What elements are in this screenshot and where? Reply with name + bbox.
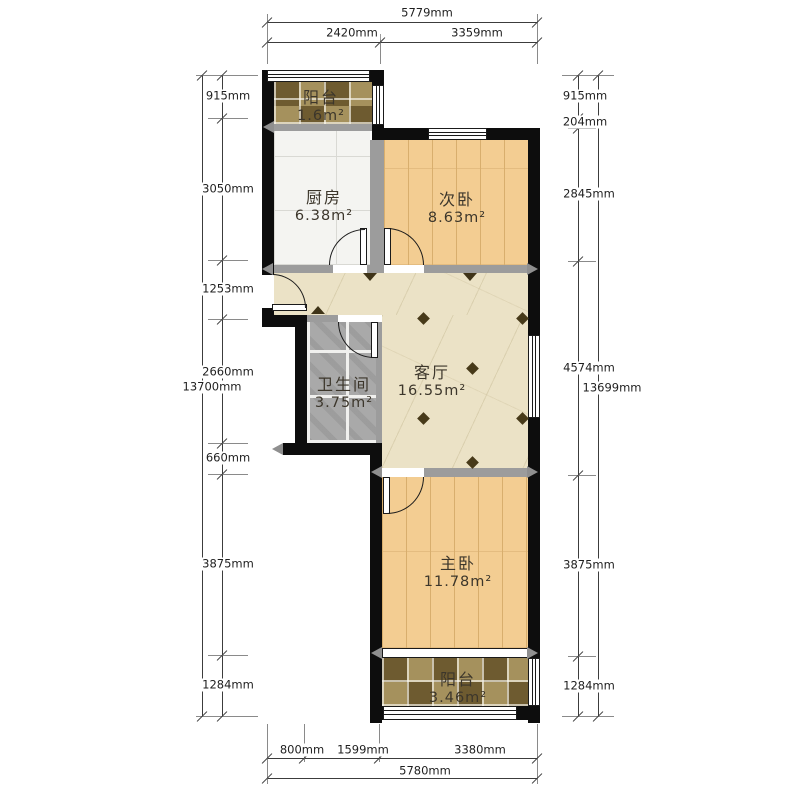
window-balcony-bottom [383,706,517,720]
dim-label-left-total: 13700mm [181,381,244,394]
dim-label-top-total: 5779mm [399,7,455,20]
extension-line [208,118,248,119]
dimension-line [578,75,579,716]
dim-label-left-seg: 2660mm [200,366,256,379]
dim-label-bottom-total: 5780mm [397,765,453,778]
wall-end-arrow-icon [527,647,538,659]
dim-label-left-seg: 660mm [204,452,252,465]
wall-master-top [424,468,528,477]
dim-label-right-seg: 4574mm [561,362,617,375]
extension-line [568,261,596,262]
dim-label-left-seg: 915mm [204,90,252,103]
room-area: 1.6m² [297,108,345,124]
dimension-line [598,75,599,716]
wall-balcony-kitchen-divider [274,124,372,131]
wall-end-arrow-icon [371,466,382,478]
dimension-line [267,42,537,43]
wall-right [528,140,540,723]
extension-line [568,475,596,476]
room-name: 阳台 [429,666,487,690]
dim-label-left-seg: 3050mm [200,183,256,196]
dimension-line [222,75,223,716]
extension-line [380,34,381,64]
extension-line [562,75,614,76]
room-label-bathroom: 卫生间 3.75m² [315,371,373,411]
dim-label-left-seg: 1253mm [200,283,256,296]
extension-line [208,474,248,475]
dimension-line [202,75,203,716]
wall-living-top-mid [367,265,384,273]
dim-label-bottom-seg: 800mm [278,744,326,757]
extension-line [208,319,248,320]
wall-living-top-left [274,265,333,273]
dim-label-bottom-seg: 1599mm [335,744,391,757]
room-name: 厨房 [295,184,353,208]
dimension-line [267,22,537,23]
extension-line [568,656,596,657]
room-label-balcony-top: 阳台 1.6m² [297,84,345,124]
wall-end-arrow-icon [527,263,538,275]
window-balcony-top [267,70,370,82]
window-living-right [528,335,540,418]
room-name: 客厅 [398,359,466,383]
dim-label-right-seg: 1284mm [561,680,617,693]
wall-kitchen-bedroom-partition [370,140,384,265]
window-bedroom-second [428,128,487,140]
extension-line [208,655,248,656]
dim-label-right-seg: 3875mm [561,559,617,572]
extension-line [196,75,258,76]
wall-master-left [370,443,382,723]
room-area: 11.78m² [424,574,492,590]
wall-end-arrow-icon [272,443,283,455]
dim-label-top-seg: 3359mm [449,27,505,40]
dim-label-left-seg: 1284mm [200,679,256,692]
threshold-triangle-icon [363,273,377,281]
wall-end-arrow-icon [263,121,274,133]
floor-plan-canvas: 阳台 1.6m² 厨房 6.38m² 次卧 8.63m² 客厅 16.55m² … [0,0,800,800]
dimension-line [267,758,537,759]
room-label-kitchen: 厨房 6.38m² [295,184,353,224]
room-label-bedroom-second: 次卧 8.63m² [428,186,486,226]
dim-label-right-seg: 2845mm [561,188,617,201]
wall-end-arrow-icon [371,647,382,659]
room-area: 3.75m² [315,395,373,411]
wall-left-upper [262,82,274,275]
room-label-bedroom-master: 主卧 11.78m² [424,550,492,590]
slider-master-balcony [382,648,528,658]
dimension-line [267,778,537,779]
extension-line [562,716,614,717]
dim-label-right-seg: 204mm [561,116,609,129]
room-area: 3.46m² [429,690,487,706]
room-name: 卫生间 [315,371,373,395]
threshold-triangle-icon [311,306,325,314]
room-name: 阳台 [297,84,345,108]
wall-bathroom-bottom [283,443,382,455]
room-name: 次卧 [428,186,486,210]
dim-label-top-seg: 2420mm [324,27,380,40]
room-name: 主卧 [424,550,492,574]
wall-end-arrow-icon [527,466,538,478]
wall-bathroom-top [307,315,338,322]
extension-line [208,443,248,444]
threshold-triangle-icon [463,273,477,281]
extension-line [208,260,248,261]
dim-label-right-total: 13699mm [581,382,644,395]
wall-end-arrow-icon [262,263,273,275]
room-label-living-room: 客厅 16.55m² [398,359,466,399]
room-label-balcony-bottom: 阳台 3.46m² [429,666,487,706]
room-area: 16.55m² [398,383,466,399]
wall-living-top-right [424,265,528,273]
room-area: 8.63m² [428,210,486,226]
window-balcony-top-right [372,85,384,125]
dim-label-right-seg: 915mm [561,90,609,103]
window-balcony-bottom-right [528,658,540,706]
dim-label-left-seg: 3875mm [200,558,256,571]
dim-label-bottom-seg: 3380mm [452,744,508,757]
wall-bathroom-left [295,315,307,455]
extension-line [196,716,258,717]
room-area: 6.38m² [295,208,353,224]
